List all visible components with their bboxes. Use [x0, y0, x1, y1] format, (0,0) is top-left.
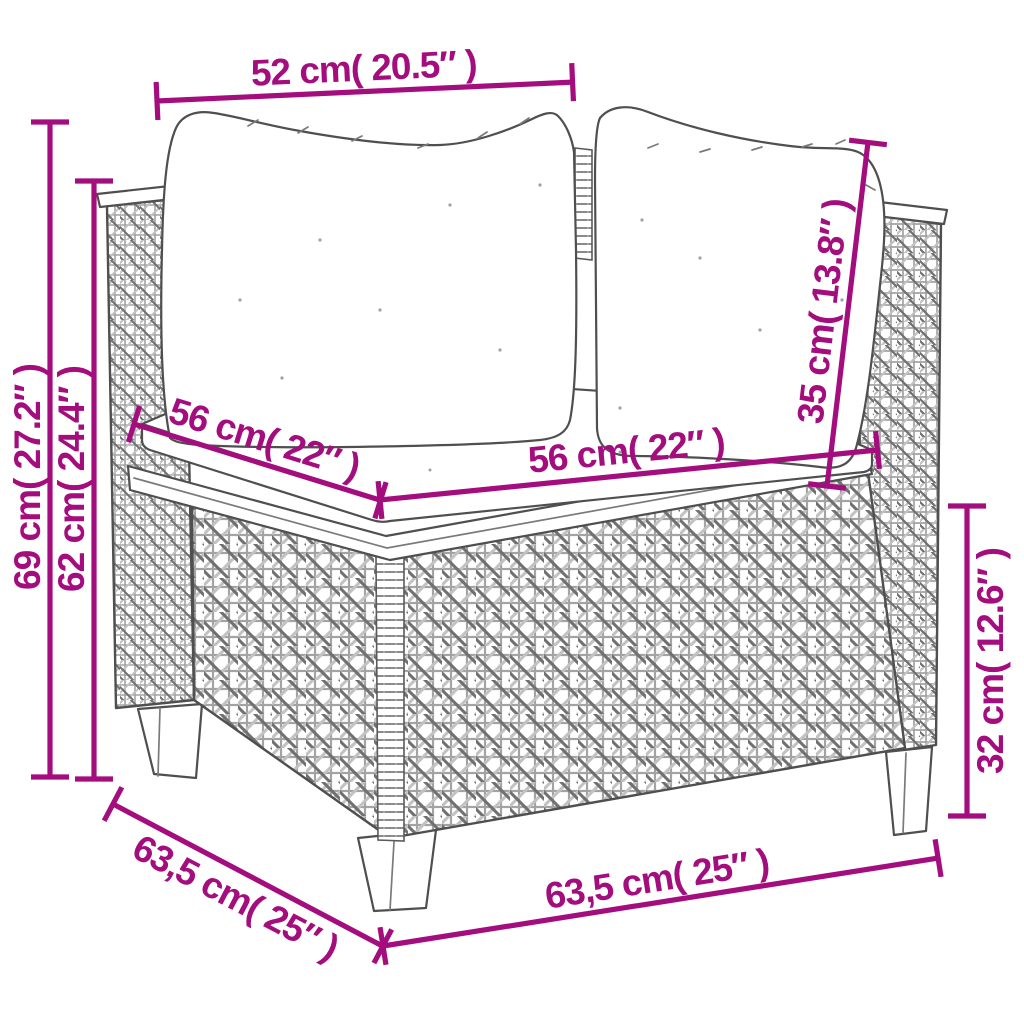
- dimension-label: 69 cm( 27.2″ ): [7, 364, 48, 590]
- diagram-canvas: 52 cm( 20.5″ ) 69 cm( 27.2″ ) 62 cm( 24.…: [0, 0, 1024, 1024]
- dimension-label: 62 cm( 24.4″ ): [51, 366, 92, 592]
- dimension-label: 63,5 cm( 25″ ): [542, 841, 771, 917]
- dimension-backrest-height: 62 cm( 24.4″ ): [51, 181, 113, 779]
- between-cushion-post: [575, 148, 592, 260]
- product-dimension-diagram: 52 cm( 20.5″ ) 69 cm( 27.2″ ) 62 cm( 24.…: [0, 0, 1024, 1024]
- dimension-label: 63,5 cm( 25″ ): [126, 827, 345, 969]
- base-left-face: [192, 505, 390, 838]
- leg-front: [358, 830, 436, 911]
- dimension-line: [104, 787, 392, 963]
- dimension-base-width: 63,5 cm( 25″ ): [376, 815, 941, 965]
- dimension-label: 32 cm( 12.6″ ): [970, 548, 1011, 774]
- dimension-base-height: 32 cm( 12.6″ ): [948, 506, 1011, 816]
- leg-right: [886, 747, 932, 835]
- leg-back-left: [138, 704, 202, 778]
- base-corner-braid: [376, 553, 404, 841]
- dimension-base-depth: 63,5 cm( 25″ ): [92, 787, 392, 987]
- back-cushion-left: [161, 112, 576, 447]
- dimension-top-width: 52 cm( 20.5″ ): [155, 38, 573, 120]
